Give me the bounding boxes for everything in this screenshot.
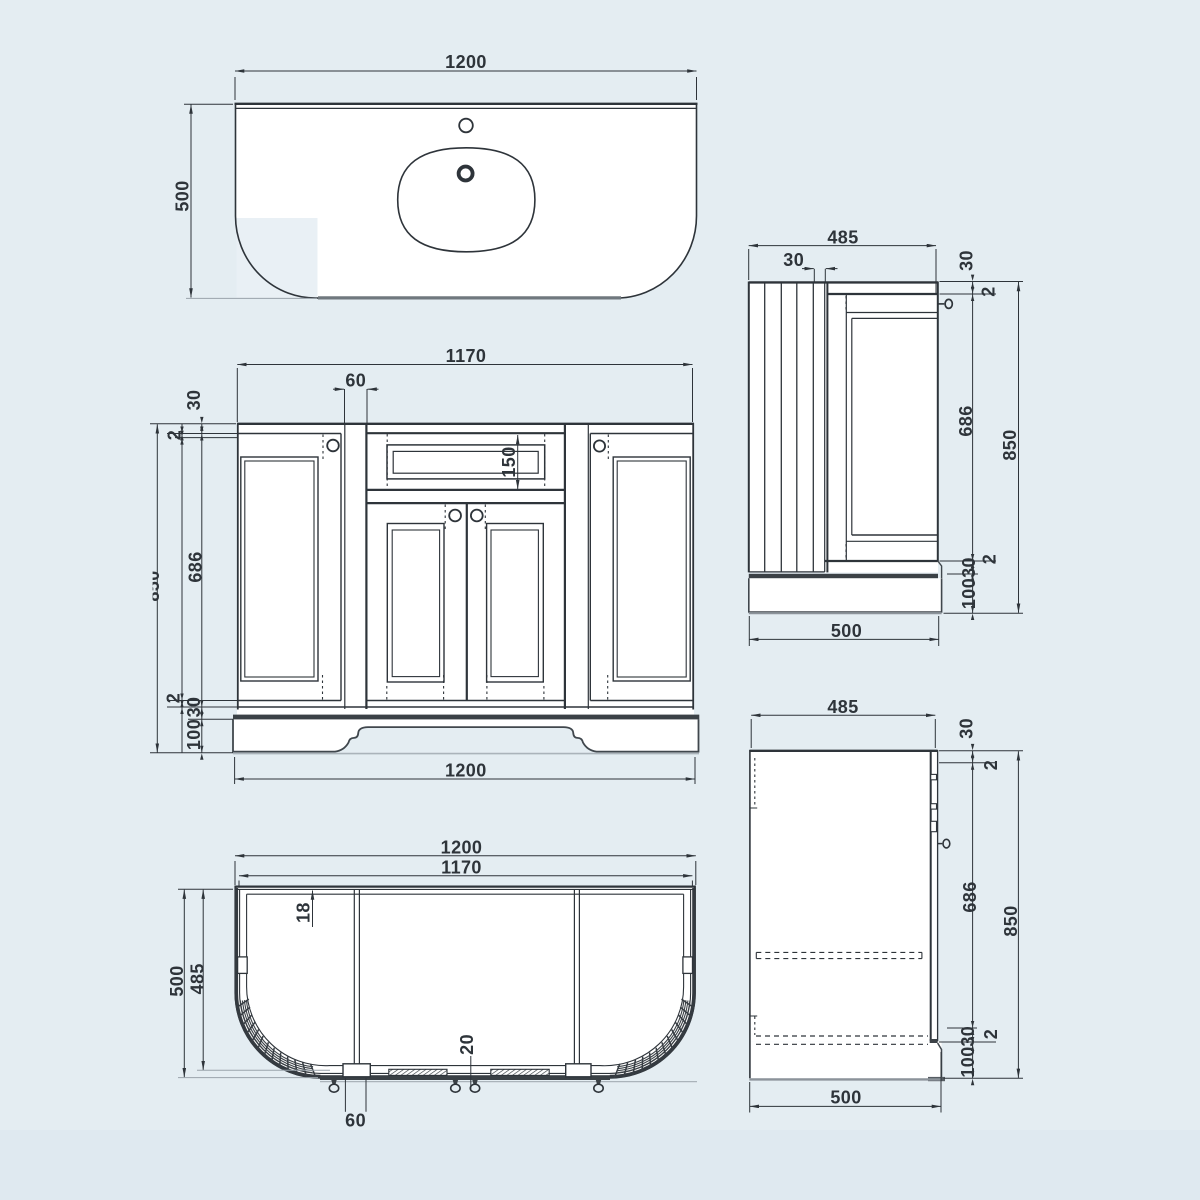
svg-text:500: 500 [167,965,187,996]
svg-text:1200: 1200 [445,761,487,781]
svg-text:30: 30 [957,718,977,739]
svg-text:100: 100 [958,1046,978,1077]
svg-text:485: 485 [827,697,858,717]
svg-text:1200: 1200 [441,837,483,857]
svg-text:30: 30 [958,1026,978,1047]
svg-text:20: 20 [457,1034,477,1055]
svg-text:30: 30 [184,697,204,718]
svg-text:2: 2 [164,693,184,703]
svg-text:2: 2 [979,286,999,296]
svg-text:1200: 1200 [445,52,487,72]
svg-text:150: 150 [499,446,519,477]
svg-text:2: 2 [165,430,185,440]
svg-text:850: 850 [1001,905,1021,936]
svg-text:60: 60 [345,371,366,391]
svg-text:1170: 1170 [446,346,487,366]
svg-text:100: 100 [959,578,979,609]
svg-text:18: 18 [294,902,314,923]
svg-text:485: 485 [827,228,858,248]
svg-text:2: 2 [981,760,1001,770]
svg-text:100: 100 [184,719,204,750]
svg-text:686: 686 [960,881,980,912]
svg-text:850: 850 [1000,429,1020,460]
svg-text:500: 500 [173,180,193,211]
svg-text:30: 30 [783,250,804,270]
svg-text:500: 500 [830,1088,861,1108]
svg-text:2: 2 [981,1029,1001,1039]
svg-text:30: 30 [959,557,979,578]
svg-text:485: 485 [187,963,207,994]
svg-text:500: 500 [831,621,862,641]
svg-text:30: 30 [957,250,977,271]
svg-text:60: 60 [345,1111,366,1131]
svg-text:1170: 1170 [441,857,482,877]
svg-text:686: 686 [186,551,206,582]
svg-text:686: 686 [956,405,976,436]
svg-text:30: 30 [184,390,204,411]
svg-text:2: 2 [980,554,1000,564]
